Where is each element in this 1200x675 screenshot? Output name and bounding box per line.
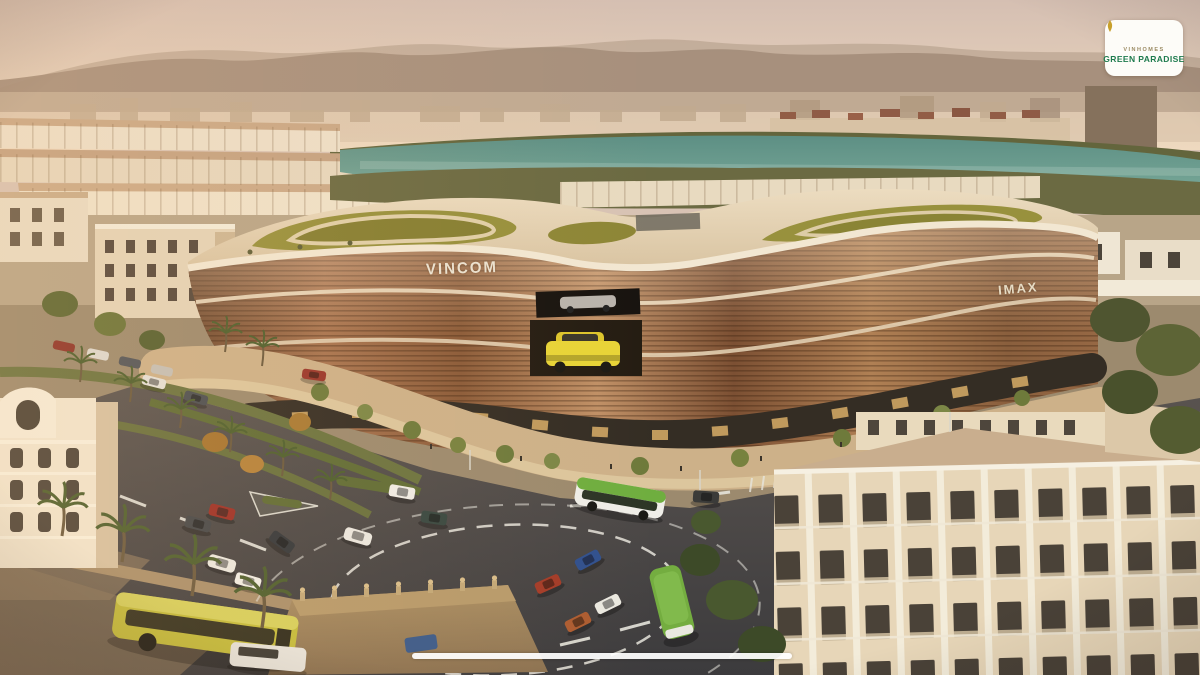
scene-illustration	[0, 0, 1200, 675]
video-progress-bar[interactable]	[412, 653, 792, 659]
vignette	[0, 0, 1200, 675]
video-frame: VINCOM IMAX VINHOMES GREEN PARADISE	[0, 0, 1200, 675]
brand-watermark: VINHOMES GREEN PARADISE	[1105, 20, 1183, 76]
watermark-brand-small: VINHOMES	[1123, 47, 1164, 53]
watermark-brand-main: GREEN PARADISE	[1103, 54, 1184, 64]
